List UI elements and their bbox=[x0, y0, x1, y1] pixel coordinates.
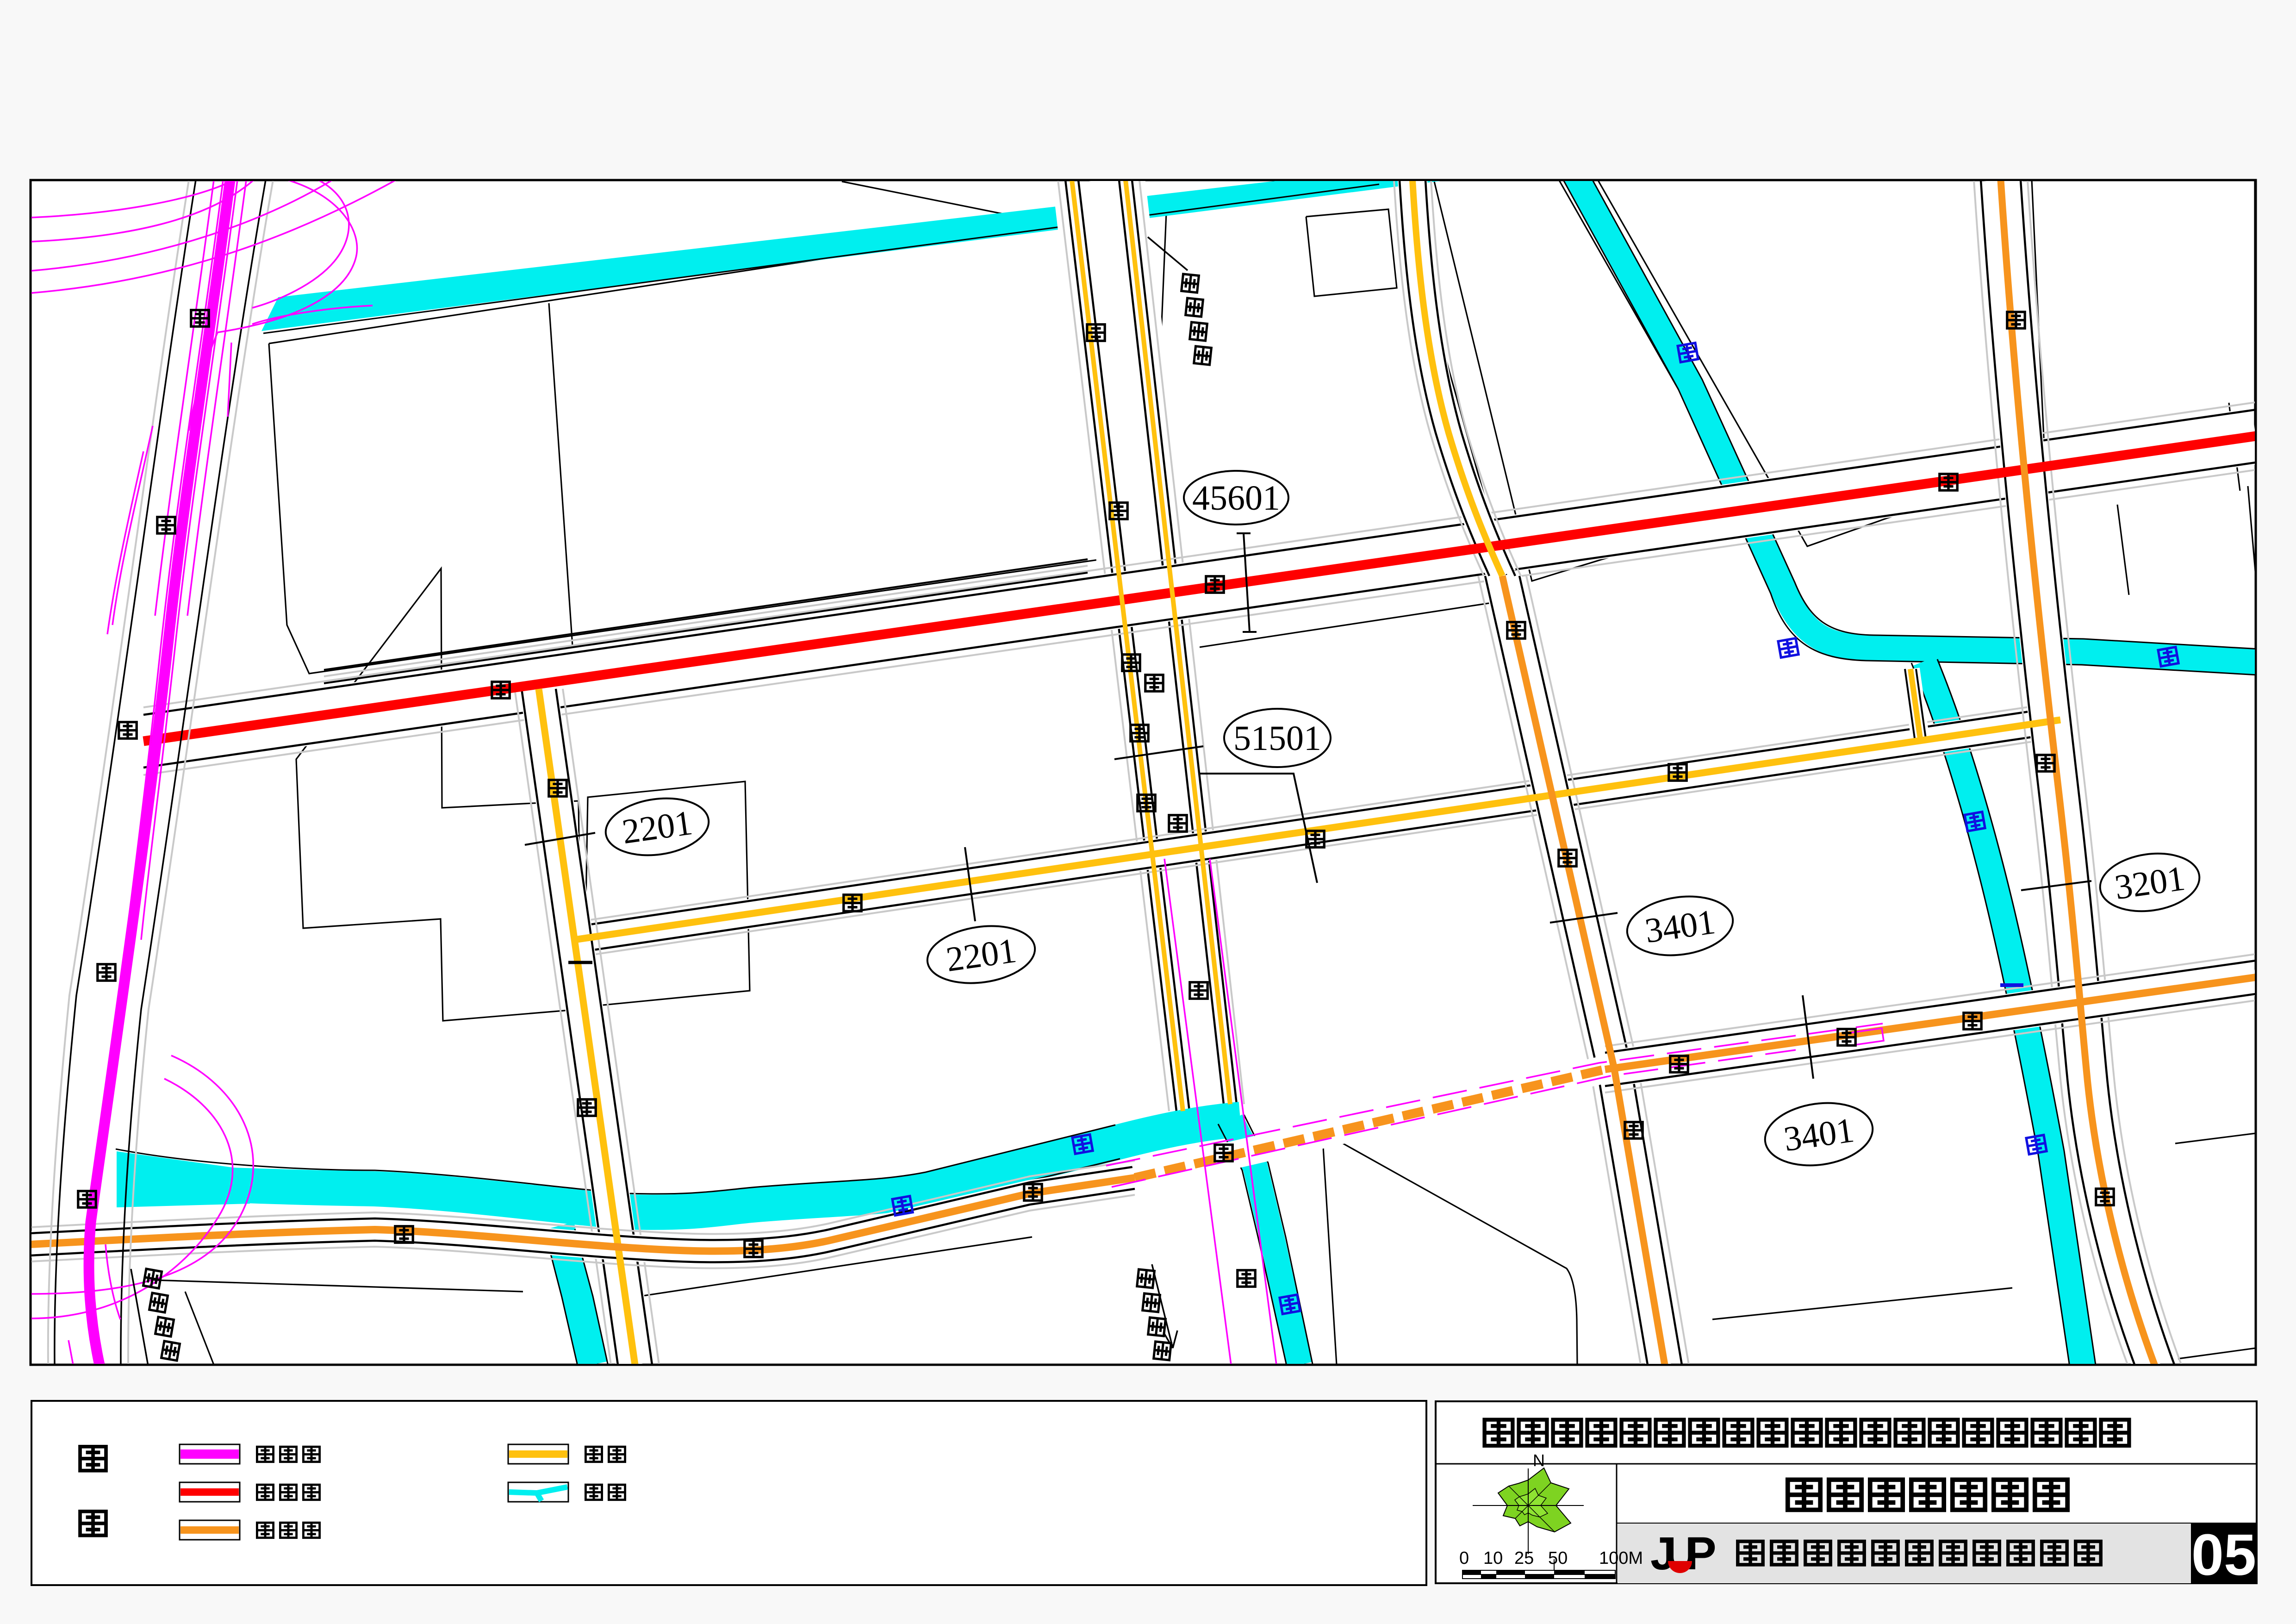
svg-text:10: 10 bbox=[1483, 1549, 1503, 1568]
svg-text:100M: 100M bbox=[1599, 1549, 1643, 1568]
svg-text:N: N bbox=[1533, 1451, 1545, 1470]
svg-text:45601: 45601 bbox=[1192, 479, 1280, 518]
svg-text:0: 0 bbox=[1459, 1549, 1469, 1568]
svg-text:25: 25 bbox=[1514, 1549, 1534, 1568]
svg-text:50: 50 bbox=[1548, 1549, 1568, 1568]
svg-text:05: 05 bbox=[2191, 1522, 2256, 1587]
svg-text:51501: 51501 bbox=[1233, 719, 1321, 758]
